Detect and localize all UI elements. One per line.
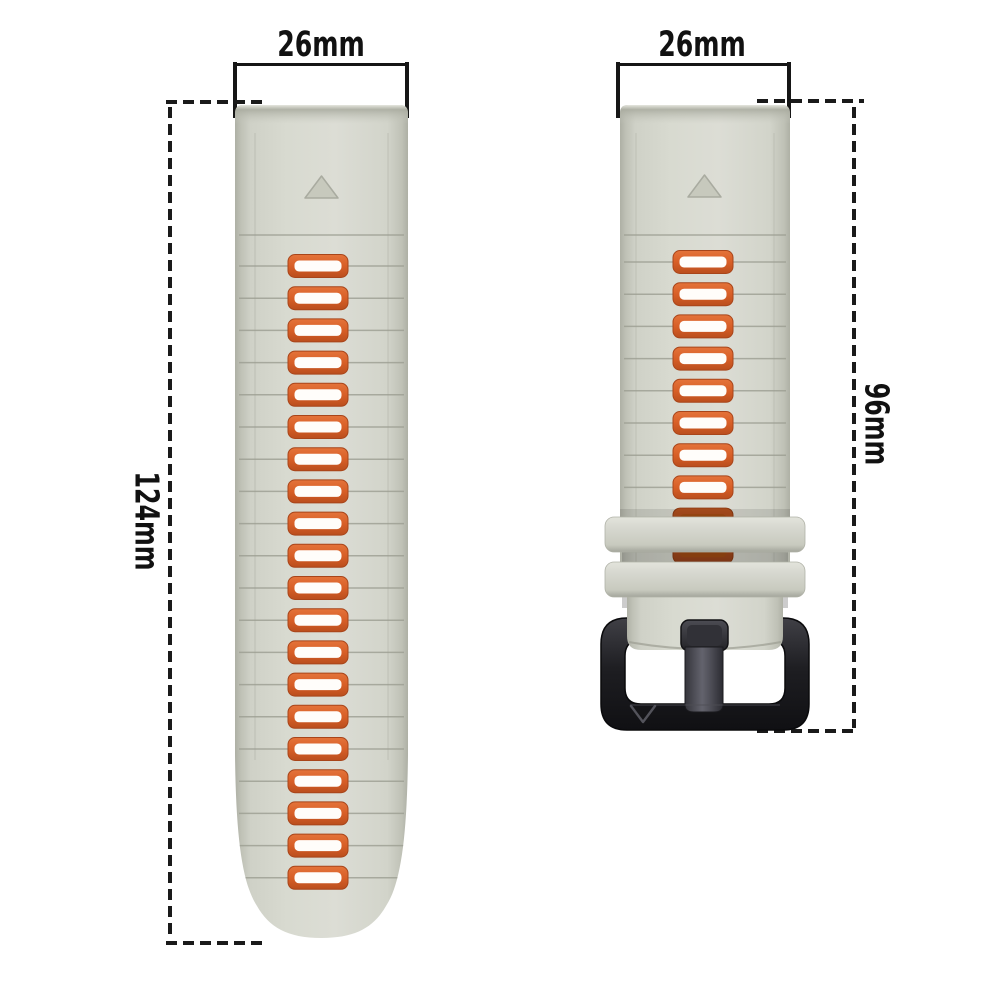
strap-hole-inner <box>295 744 342 755</box>
long-strap-end-cap <box>235 105 408 124</box>
buckle-strap-end-cap <box>620 105 790 124</box>
left-length-extension-top <box>166 100 267 104</box>
strap-hole-inner <box>680 289 727 300</box>
strap-hole-inner <box>295 422 342 433</box>
strap-hole-inner <box>680 321 727 332</box>
strap-hole-inner <box>295 776 342 787</box>
strap-hole-inner <box>680 385 727 396</box>
right-length-extension-top <box>757 99 864 103</box>
left-length-label: 124mm <box>128 471 167 570</box>
strap-hole-inner <box>295 808 342 819</box>
strap-hole-inner <box>295 357 342 368</box>
buckle-pin-clasp-inner <box>687 625 722 646</box>
strap-hole-inner <box>295 679 342 690</box>
long-strap <box>235 105 408 939</box>
strap-hole-inner <box>295 518 342 529</box>
right-length-dimension-line <box>852 107 856 728</box>
strap-hole-inner <box>295 454 342 465</box>
strap-hole-inner <box>680 450 727 461</box>
buckle-pin <box>685 647 723 712</box>
strap-hole-inner <box>295 615 342 626</box>
strap-hole-inner <box>680 257 727 268</box>
strap-hole-inner <box>295 293 342 304</box>
left-width-label: 26mm <box>277 25 365 65</box>
keeper-gap-shadow <box>622 552 788 562</box>
left-length-dimension-line <box>168 107 172 940</box>
strap-hole-inner <box>295 325 342 336</box>
strap-hole-inner <box>295 550 342 561</box>
right-width-label: 26mm <box>658 25 746 65</box>
strap-hole-inner <box>295 261 342 272</box>
buckle-strap <box>600 105 810 737</box>
strap-hole-inner <box>295 840 342 851</box>
strap-hole-inner <box>295 647 342 658</box>
left-length-extension-bottom <box>166 941 267 945</box>
strap-hole-inner <box>295 486 342 497</box>
strap-keeper-2 <box>605 562 805 597</box>
right-length-label: 96mm <box>858 383 897 466</box>
strap-keeper-1 <box>605 517 805 552</box>
strap-hole-inner <box>295 872 342 883</box>
strap-hole-inner <box>680 353 727 364</box>
strap-hole-inner <box>295 389 342 400</box>
strap-hole-inner <box>680 482 727 493</box>
strap-hole-inner <box>295 711 342 722</box>
strap-hole-inner <box>295 583 342 594</box>
strap-hole-inner <box>680 418 727 429</box>
product-diagram: 26mm 26mm 124mm 96mm <box>0 0 1000 1000</box>
